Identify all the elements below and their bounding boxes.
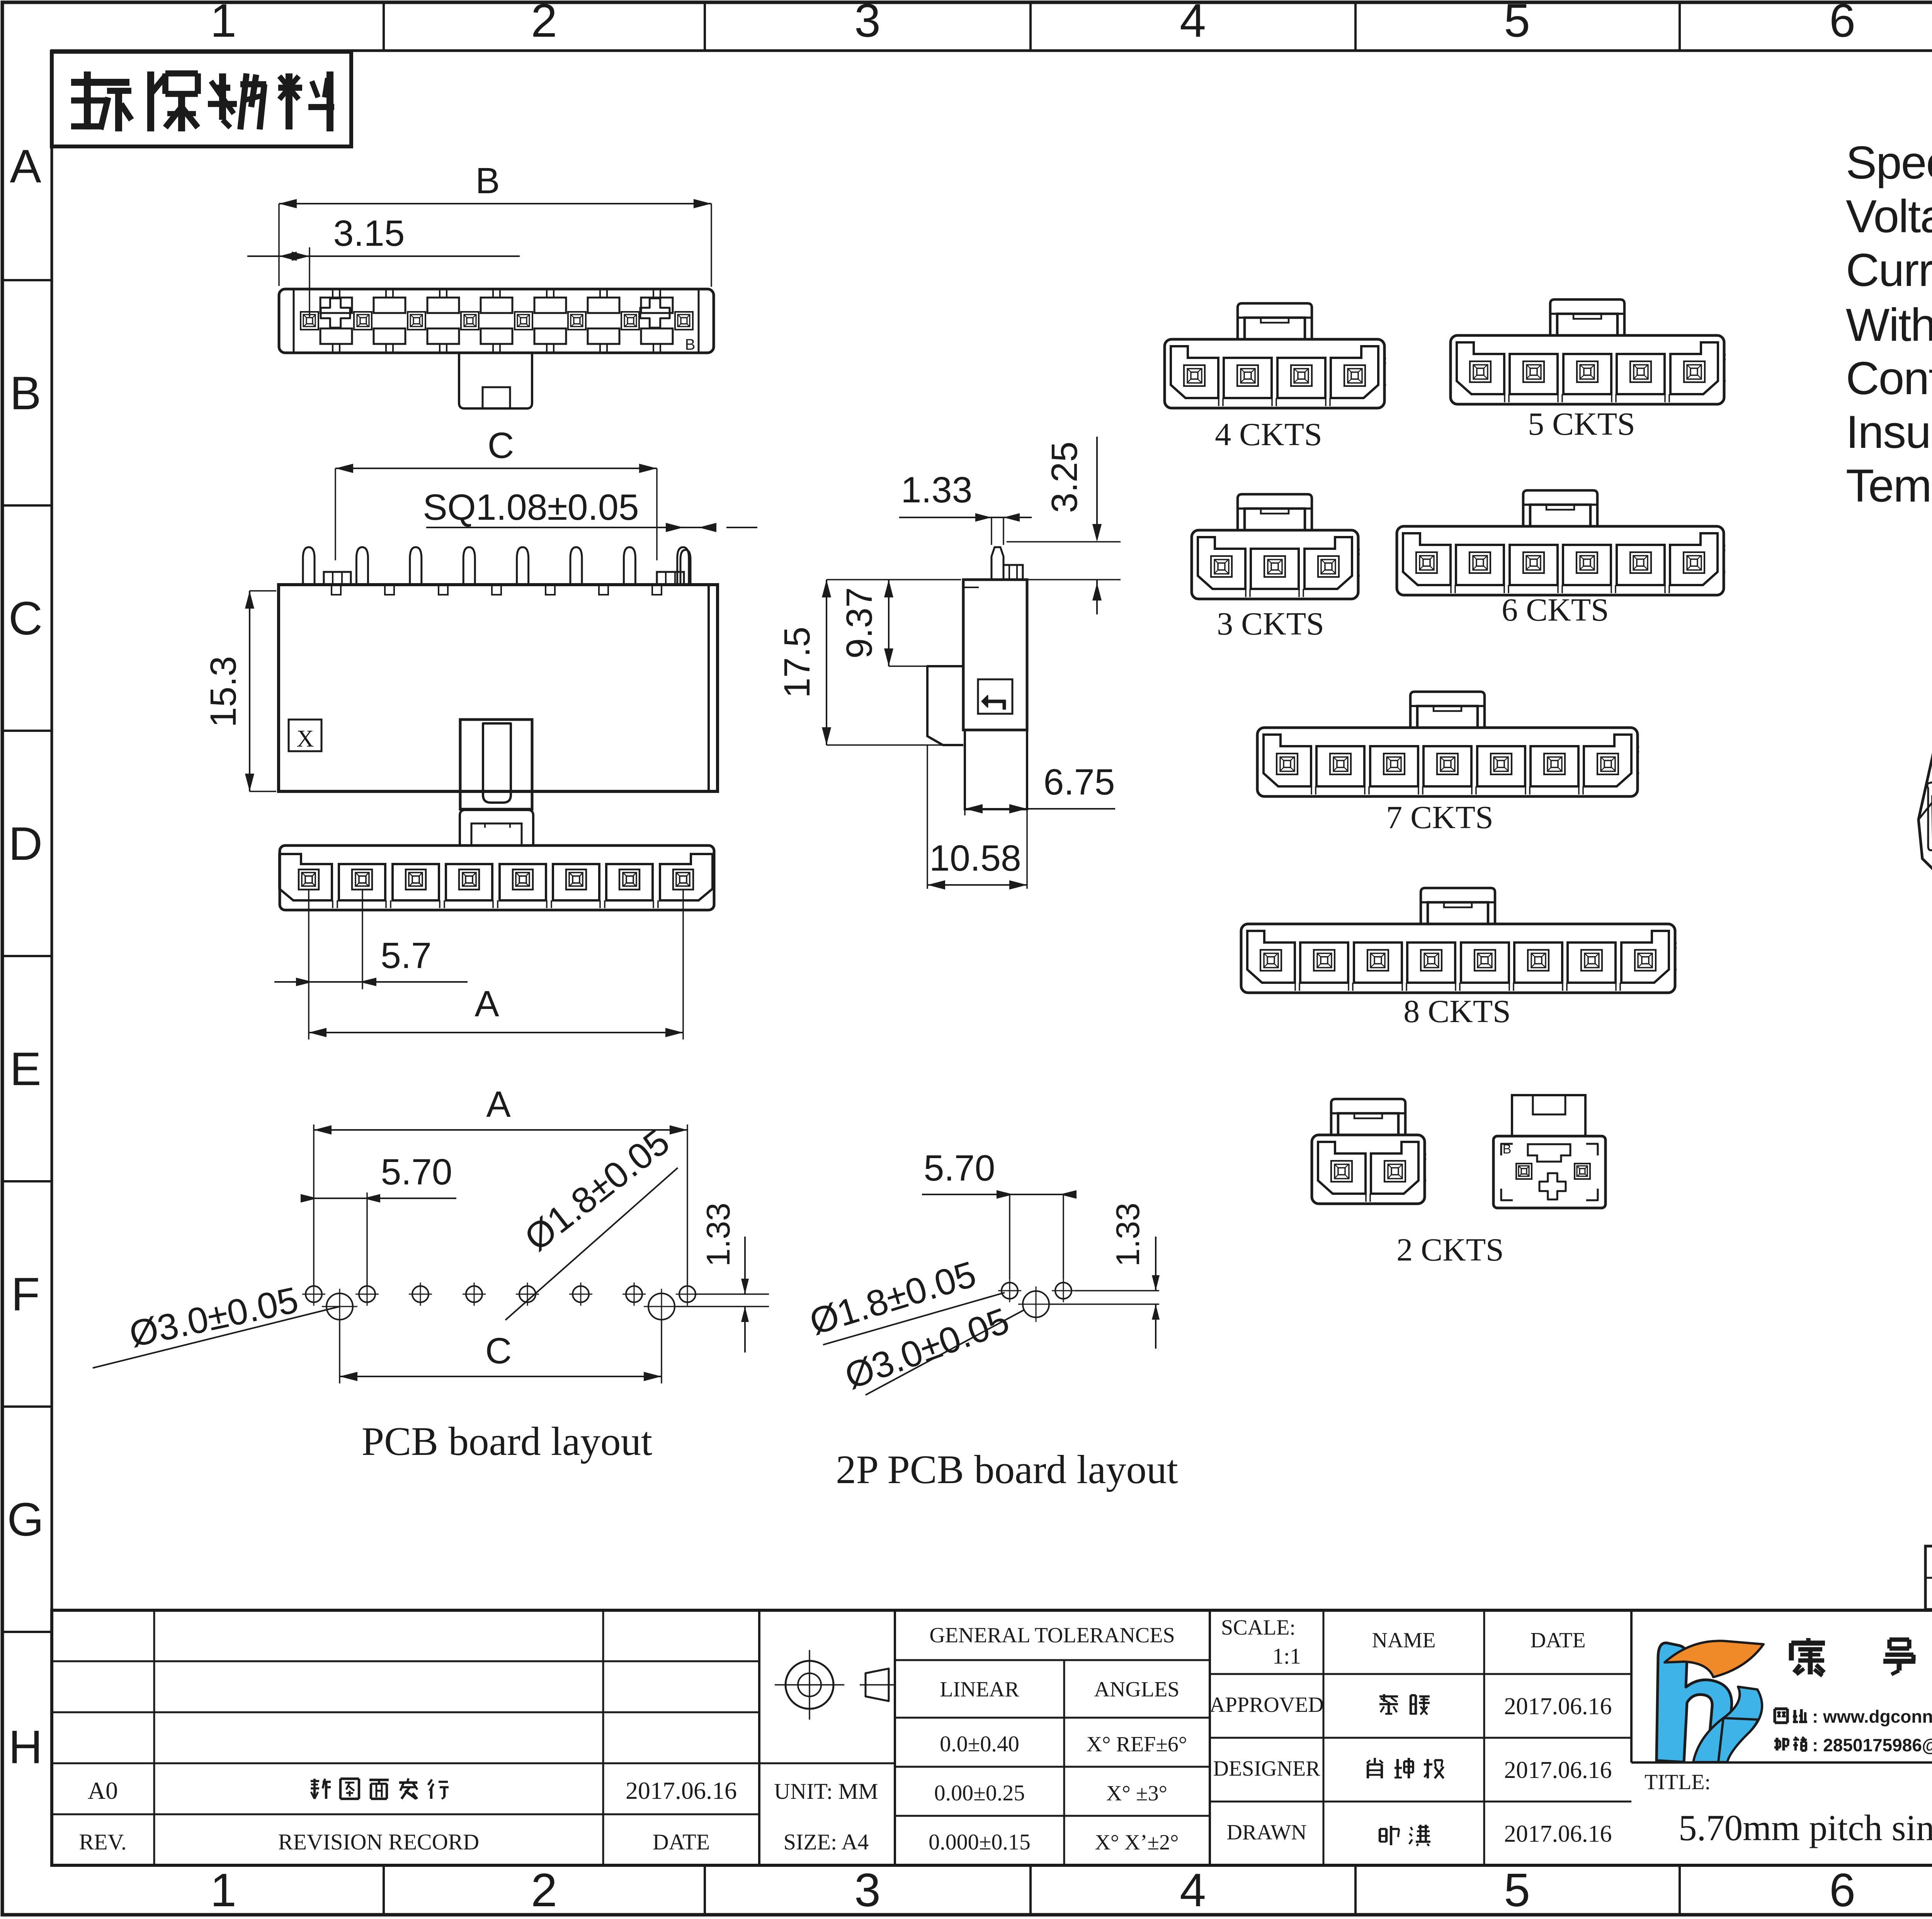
svg-text:Voltage Rating : 600V AC/D: Voltage Rating : 600V AC/DC bbox=[1846, 191, 1932, 242]
svg-text:ANGLES: ANGLES bbox=[1094, 1677, 1180, 1701]
svg-text:5.70: 5.70 bbox=[924, 1148, 995, 1189]
svg-text:8 CKTS: 8 CKTS bbox=[1403, 994, 1511, 1029]
svg-text:SCALE:: SCALE: bbox=[1221, 1616, 1296, 1640]
svg-text:4: 4 bbox=[1180, 0, 1206, 47]
svg-text:PCB board layout: PCB board layout bbox=[362, 1419, 652, 1464]
svg-text:NAME: NAME bbox=[1372, 1628, 1436, 1652]
svg-text:B: B bbox=[685, 336, 696, 353]
svg-text:A: A bbox=[10, 140, 41, 192]
svg-text:B: B bbox=[1503, 1142, 1512, 1157]
svg-text:E: E bbox=[10, 1043, 41, 1095]
svg-text:Insulation Resistance : 100: Insulation Resistance : 1000MΩ(MIN.) bbox=[1846, 406, 1932, 458]
svg-text:3.25: 3.25 bbox=[1044, 442, 1085, 513]
svg-text:Current Rating : 10A AC,DC: Current Rating : 10A AC,DC bbox=[1846, 244, 1932, 296]
svg-text:REVISION RECORD: REVISION RECORD bbox=[278, 1829, 479, 1854]
svg-text:SQ1.08±0.05: SQ1.08±0.05 bbox=[423, 487, 639, 528]
svg-text:A0: A0 bbox=[88, 1777, 118, 1804]
svg-text:C: C bbox=[485, 1330, 512, 1371]
svg-text:4: 4 bbox=[1180, 1864, 1206, 1916]
svg-text:2: 2 bbox=[531, 1864, 557, 1916]
svg-text:2017.06.16: 2017.06.16 bbox=[1504, 1693, 1612, 1720]
svg-text:DESIGNER: DESIGNER bbox=[1213, 1757, 1321, 1781]
svg-text:Temperature Range : −40°C~+: Temperature Range : −40°C~+105°C bbox=[1846, 460, 1932, 512]
svg-text:1:1: 1:1 bbox=[1272, 1643, 1301, 1669]
svg-text:3 CKTS: 3 CKTS bbox=[1217, 606, 1324, 642]
svg-text:A: A bbox=[474, 983, 499, 1024]
svg-text:1.33: 1.33 bbox=[1110, 1203, 1146, 1266]
svg-text:1: 1 bbox=[210, 1864, 236, 1916]
svg-text:X° X’±2°: X° X’±2° bbox=[1095, 1831, 1179, 1854]
svg-text:UNIT: MM: UNIT: MM bbox=[774, 1779, 878, 1804]
svg-text:Contact Resistance : 10mΩ(M: Contact Resistance : 10mΩ(MAX.) bbox=[1846, 352, 1932, 404]
svg-text:APPROVED: APPROVED bbox=[1209, 1693, 1324, 1717]
svg-text:5.7: 5.7 bbox=[381, 935, 432, 976]
svg-text:3: 3 bbox=[854, 0, 881, 47]
svg-text:6: 6 bbox=[1829, 0, 1855, 47]
svg-text:GENERAL TOLERANCES: GENERAL TOLERANCES bbox=[929, 1623, 1175, 1647]
svg-text:0.00±0.25: 0.00±0.25 bbox=[934, 1780, 1025, 1805]
svg-text:17.5: 17.5 bbox=[777, 627, 818, 698]
svg-text:: 2850175986@qq.com: : 2850175986@qq.com bbox=[1812, 1735, 1932, 1755]
svg-text:Withstand Voltage : 2200V: Withstand Voltage : 2200V AC/minute bbox=[1846, 299, 1932, 351]
svg-text:D: D bbox=[9, 817, 43, 870]
svg-text:H: H bbox=[9, 1721, 43, 1773]
svg-text:5: 5 bbox=[1504, 1864, 1530, 1916]
svg-text:0.0±0.40: 0.0±0.40 bbox=[940, 1731, 1019, 1756]
svg-text:2017.06.16: 2017.06.16 bbox=[1504, 1821, 1612, 1847]
svg-text:2P PCB board layout: 2P PCB board layout bbox=[836, 1447, 1178, 1492]
svg-text:REV.: REV. bbox=[79, 1829, 126, 1854]
svg-text:0.000±0.15: 0.000±0.15 bbox=[929, 1829, 1031, 1854]
svg-text:2 CKTS: 2 CKTS bbox=[1396, 1232, 1504, 1268]
svg-text:3: 3 bbox=[854, 1864, 881, 1916]
svg-text:9.37: 9.37 bbox=[839, 587, 880, 659]
svg-text:X: X bbox=[297, 726, 314, 752]
svg-text:C: C bbox=[488, 425, 514, 466]
svg-text:2: 2 bbox=[531, 0, 557, 47]
svg-text:5 CKTS: 5 CKTS bbox=[1528, 406, 1635, 442]
svg-text:5.70: 5.70 bbox=[381, 1152, 452, 1193]
svg-text:F: F bbox=[11, 1268, 40, 1320]
svg-text:6: 6 bbox=[1829, 1864, 1855, 1916]
svg-text:5.70mm pitch single: 5.70mm pitch single bbox=[1679, 1807, 1932, 1848]
svg-text:5: 5 bbox=[1504, 0, 1530, 47]
svg-text:10.58: 10.58 bbox=[929, 838, 1021, 879]
svg-text:1: 1 bbox=[210, 0, 236, 47]
svg-text:A: A bbox=[486, 1084, 511, 1125]
svg-text:DRAWN: DRAWN bbox=[1226, 1820, 1306, 1844]
svg-text:4 CKTS: 4 CKTS bbox=[1215, 417, 1322, 453]
svg-text:X° ±3°: X° ±3° bbox=[1106, 1781, 1167, 1805]
svg-text:6.75: 6.75 bbox=[1044, 762, 1115, 803]
svg-text:Specifications:: Specifications: bbox=[1846, 137, 1932, 189]
svg-text:6 CKTS: 6 CKTS bbox=[1502, 592, 1609, 628]
svg-text:1.33: 1.33 bbox=[700, 1203, 737, 1266]
svg-text:G: G bbox=[7, 1493, 44, 1546]
svg-text:B: B bbox=[10, 367, 41, 419]
svg-text:1.33: 1.33 bbox=[901, 470, 973, 510]
svg-text:15.3: 15.3 bbox=[203, 656, 244, 728]
svg-text:3.15: 3.15 bbox=[333, 213, 405, 254]
svg-text:TITLE:: TITLE: bbox=[1645, 1770, 1711, 1794]
svg-text:DATE: DATE bbox=[653, 1829, 710, 1854]
svg-text:7 CKTS: 7 CKTS bbox=[1386, 800, 1493, 835]
svg-text:C: C bbox=[9, 592, 43, 645]
svg-text:: www.dgconne.com: : www.dgconne.com bbox=[1812, 1706, 1932, 1727]
svg-text:LINEAR: LINEAR bbox=[940, 1677, 1019, 1701]
svg-text:B: B bbox=[475, 160, 500, 201]
svg-text:2017.06.16: 2017.06.16 bbox=[626, 1777, 737, 1804]
svg-text:DATE: DATE bbox=[1530, 1628, 1585, 1652]
svg-text:SIZE: A4: SIZE: A4 bbox=[784, 1829, 869, 1854]
svg-text:2017.06.16: 2017.06.16 bbox=[1504, 1757, 1612, 1783]
svg-text:X° REF±6°: X° REF±6° bbox=[1087, 1732, 1187, 1756]
